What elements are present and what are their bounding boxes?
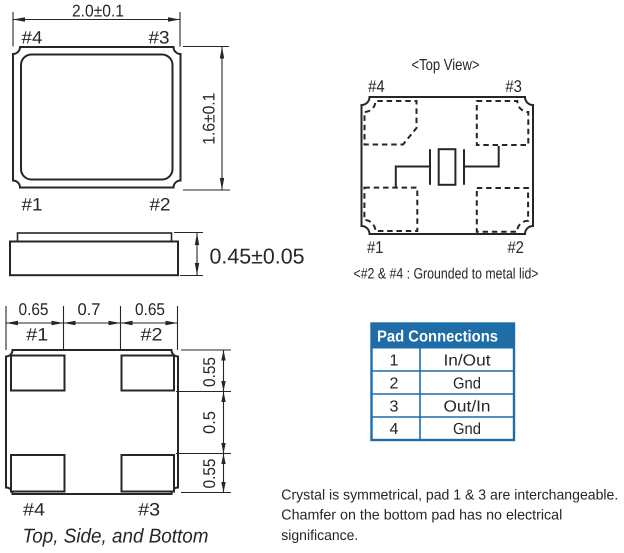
svg-text:significance.: significance.: [281, 528, 358, 544]
svg-text:<#2 & #4 : Grounded to metal l: <#2 & #4 : Grounded to metal lid>: [354, 266, 539, 283]
svg-text:<Top View>: <Top View>: [412, 57, 480, 74]
svg-text:0.5: 0.5: [200, 411, 219, 434]
svg-text:#2: #2: [507, 238, 524, 257]
svg-text:Gnd: Gnd: [453, 376, 481, 393]
svg-text:#1: #1: [26, 325, 48, 345]
svg-text:In/Out: In/Out: [444, 353, 492, 370]
svg-text:0.45±0.05: 0.45±0.05: [210, 245, 305, 269]
svg-text:4: 4: [390, 421, 399, 438]
svg-text:#1: #1: [22, 195, 43, 215]
svg-text:Gnd: Gnd: [453, 421, 481, 438]
svg-text:0.7: 0.7: [78, 300, 101, 319]
svg-text:#1: #1: [367, 238, 384, 257]
svg-text:1: 1: [390, 353, 399, 370]
svg-text:2: 2: [390, 376, 399, 393]
svg-text:3: 3: [390, 399, 399, 416]
svg-text:Pad Connections: Pad Connections: [377, 329, 498, 346]
svg-text:#3: #3: [505, 77, 522, 96]
svg-text:0.65: 0.65: [135, 300, 165, 319]
svg-text:#3: #3: [149, 28, 170, 48]
svg-text:Top, Side, and Bottom: Top, Side, and Bottom: [23, 526, 209, 548]
svg-text:1.6±0.1: 1.6±0.1: [200, 93, 219, 145]
svg-text:0.55: 0.55: [200, 357, 219, 387]
svg-text:#4: #4: [23, 500, 45, 520]
svg-text:2.0±0.1: 2.0±0.1: [72, 2, 124, 21]
svg-text:#2: #2: [141, 325, 163, 345]
svg-text:Chamfer on the bottom pad has: Chamfer on the bottom pad has no electri…: [281, 508, 562, 524]
svg-text:#2: #2: [150, 195, 171, 215]
svg-text:Crystal is symmetrical, pad 1: Crystal is symmetrical, pad 1 & 3 are in…: [281, 488, 618, 504]
svg-text:#4: #4: [22, 28, 43, 48]
svg-text:0.65: 0.65: [19, 300, 49, 319]
svg-text:0.55: 0.55: [200, 459, 219, 489]
svg-text:Out/In: Out/In: [444, 399, 491, 416]
svg-text:#3: #3: [138, 500, 160, 520]
svg-text:#4: #4: [368, 77, 385, 96]
